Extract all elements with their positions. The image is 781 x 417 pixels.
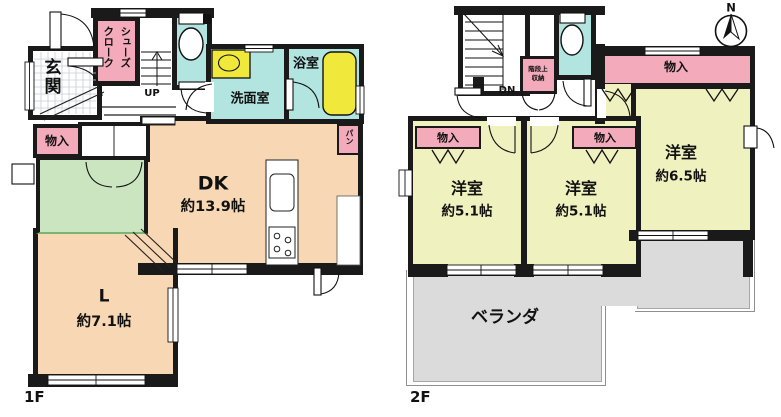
floor2-label: 2F	[410, 388, 431, 406]
compass-north-label: N	[726, 2, 736, 14]
tatami-side-door-icon	[12, 164, 34, 184]
room-tatami	[36, 156, 148, 234]
shoe-closet-label-col2: クローク	[103, 26, 114, 68]
pantry-label: パン	[345, 129, 353, 145]
living-size-label: 約7.1帖	[77, 315, 132, 330]
closet-room2-label: 物入	[594, 133, 616, 144]
washroom-label: 洗面室	[230, 93, 269, 106]
balcony-right	[637, 235, 750, 309]
bathroom-label: 浴室	[293, 58, 319, 71]
stairs-down-label: DN	[499, 86, 516, 96]
room3	[631, 84, 755, 240]
closet-room3-label: 物入	[664, 61, 688, 73]
shoe-closet-label-col1: シューズ	[120, 26, 131, 68]
room1-name-label: 洋室	[451, 181, 483, 197]
entrance-door-icon	[50, 12, 61, 49]
room-genkan	[28, 46, 102, 120]
genkan-label: 玄関	[42, 58, 59, 96]
room3-size-label: 約6.5帖	[656, 170, 707, 184]
room2-name-label: 洋室	[565, 181, 597, 197]
closet-room1-label: 物入	[437, 133, 459, 144]
room-shoe-closet	[93, 16, 140, 86]
room-washroom	[206, 44, 292, 124]
veranda-label: ベランダ	[471, 310, 539, 327]
dk-name-label: DK	[198, 175, 229, 194]
balcony-bridge	[599, 272, 639, 306]
storage-1f-label: 物入	[45, 135, 69, 147]
stairs-up-label: UP	[144, 89, 159, 99]
room2-size-label: 約5.1帖	[556, 205, 607, 219]
dk-size-label: 約13.9帖	[181, 200, 246, 215]
floor1-label: 1F	[24, 388, 45, 406]
stair-storage-label-2: 収納	[532, 75, 545, 82]
living-name-label: L	[99, 289, 110, 306]
room3-name-label: 洋室	[665, 145, 697, 161]
compass-icon	[716, 14, 747, 47]
stairs-up-icon	[141, 52, 171, 86]
room1-size-label: 約5.1帖	[442, 205, 493, 219]
room-toilet-2f	[554, 8, 596, 80]
stair-storage-label-1: 階段上	[528, 66, 548, 73]
floorplan-canvas: 玄関 シューズ クローク UP 洗面室 浴室 物入 パン DK 約13.9帖 L…	[0, 0, 781, 417]
